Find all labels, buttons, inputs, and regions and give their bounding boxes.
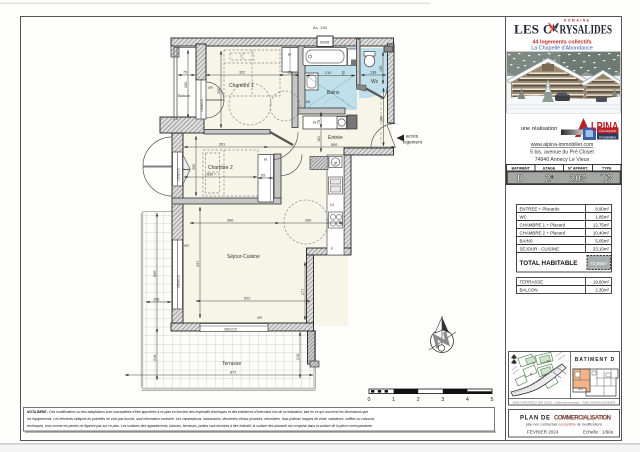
svg-text:140x215: 140x215 bbox=[200, 99, 204, 112]
svg-text:BAINS: BAINS bbox=[520, 239, 533, 244]
svg-text:Séjour-Cuisine: Séjour-Cuisine bbox=[227, 254, 260, 260]
svg-text:330: 330 bbox=[217, 88, 221, 94]
svg-text:CHAMBRE 2 + Placard: CHAMBRE 2 + Placard bbox=[520, 231, 566, 236]
svg-text:203: 203 bbox=[578, 387, 583, 391]
svg-text:1: 1 bbox=[392, 397, 395, 403]
svg-text:une réalisation: une réalisation bbox=[521, 126, 557, 132]
svg-text:ETAGE: ETAGE bbox=[543, 167, 556, 171]
svg-text:311: 311 bbox=[207, 173, 213, 177]
svg-text:75: 75 bbox=[317, 120, 321, 124]
svg-text:BABU D'ARCHITECTURE CA'DO: BABU D'ARCHITECTURE CA'DO - 5 allée des … bbox=[513, 401, 616, 405]
svg-text:351: 351 bbox=[219, 143, 225, 147]
svg-text:NOTA BENE : Des modification: NOTA BENE : Des modifications ou des ada… bbox=[27, 410, 368, 414]
svg-text:Balcon: Balcon bbox=[178, 93, 190, 98]
svg-text:T3: T3 bbox=[601, 174, 613, 185]
svg-text:5,05m²: 5,05m² bbox=[595, 239, 609, 244]
svg-text:135: 135 bbox=[379, 66, 383, 72]
svg-text:216: 216 bbox=[296, 354, 300, 360]
svg-text:TOTAL HABITABLE: TOTAL HABITABLE bbox=[520, 260, 578, 267]
svg-text:Echelle : 1/60e: Echelle : 1/60e bbox=[583, 430, 614, 435]
svg-text:Wc: Wc bbox=[371, 79, 379, 85]
svg-text:N° APPART.: N° APPART. bbox=[568, 167, 588, 171]
svg-text:210: 210 bbox=[325, 71, 331, 75]
svg-text:COMMERCIALISATION: COMMERCIALISATION bbox=[554, 416, 611, 422]
svg-text:260: 260 bbox=[305, 219, 311, 223]
svg-text:277: 277 bbox=[301, 289, 305, 295]
svg-text:1,85m²: 1,85m² bbox=[595, 215, 609, 220]
svg-text:65: 65 bbox=[261, 174, 265, 178]
svg-text:RYSALIDES: RYSALIDES bbox=[560, 23, 613, 37]
svg-text:LPINA: LPINA bbox=[591, 122, 619, 134]
svg-text:4: 4 bbox=[466, 397, 469, 403]
svg-text:280x215: 280x215 bbox=[177, 275, 181, 288]
svg-text:390: 390 bbox=[227, 219, 233, 223]
svg-text:BALCON: BALCON bbox=[520, 288, 538, 293]
svg-text:AL: 130: AL: 130 bbox=[313, 25, 328, 30]
svg-text:ENTREE + Placards: ENTREE + Placards bbox=[520, 207, 561, 212]
svg-text:33,10m²: 33,10m² bbox=[593, 247, 610, 252]
svg-text:200: 200 bbox=[184, 82, 188, 88]
svg-text:LV: LV bbox=[330, 203, 335, 207]
svg-text:2,30m²: 2,30m² bbox=[595, 288, 609, 293]
svg-text:322: 322 bbox=[239, 71, 245, 75]
svg-text:plan non contractuel susceptib: plan non contractuel susceptible de modi… bbox=[526, 423, 603, 427]
svg-text:95: 95 bbox=[342, 71, 346, 75]
svg-text:74940 Annecy Le Vieux: 74940 Annecy Le Vieux bbox=[535, 157, 590, 163]
svg-text:0: 0 bbox=[368, 397, 371, 403]
svg-text:BATIMENT: BATIMENT bbox=[512, 167, 531, 171]
svg-text:522: 522 bbox=[244, 297, 250, 301]
svg-text:PI: PI bbox=[288, 53, 291, 57]
svg-text:gf: gf bbox=[334, 161, 337, 165]
svg-text:203: 203 bbox=[570, 174, 587, 185]
svg-text:60x65: 60x65 bbox=[320, 41, 329, 45]
svg-text:D: D bbox=[517, 174, 524, 185]
svg-text:CHAMBRE 1 + Placard: CHAMBRE 1 + Placard bbox=[520, 223, 566, 228]
svg-text:PI: PI bbox=[264, 158, 267, 162]
svg-text:19,60m²: 19,60m² bbox=[593, 280, 610, 285]
svg-text:2: 2 bbox=[417, 397, 420, 403]
svg-text:5: 5 bbox=[491, 397, 494, 403]
svg-text:72,05m²: 72,05m² bbox=[590, 261, 608, 266]
svg-text:Entrée: Entrée bbox=[328, 135, 343, 141]
svg-text:3: 3 bbox=[441, 397, 444, 403]
svg-text:Bains: Bains bbox=[327, 90, 340, 96]
svg-text:les équipements. Les éléments: les équipements. Les éléments indiqués e… bbox=[27, 417, 375, 421]
svg-text:Chambre 2: Chambre 2 bbox=[208, 165, 233, 171]
svg-text:292: 292 bbox=[192, 164, 196, 170]
svg-text:8,90m²: 8,90m² bbox=[595, 207, 609, 212]
svg-text:260x215: 260x215 bbox=[224, 328, 237, 332]
svg-text:216: 216 bbox=[153, 355, 157, 361]
svg-text:TYPE: TYPE bbox=[602, 167, 612, 171]
svg-text:Immobilière: Immobilière bbox=[599, 135, 617, 139]
svg-text:75: 75 bbox=[183, 71, 187, 75]
svg-text:161: 161 bbox=[317, 136, 321, 142]
svg-text:500: 500 bbox=[331, 143, 337, 147]
svg-text:FEVRIER 2024: FEVRIER 2024 bbox=[527, 430, 559, 435]
svg-text:65: 65 bbox=[288, 71, 292, 75]
svg-text:www.alpina-immobilier.com: www.alpina-immobilier.com bbox=[531, 142, 594, 148]
svg-text:12,75m²: 12,75m² bbox=[593, 223, 610, 228]
svg-text:VR: VR bbox=[184, 244, 189, 248]
svg-text:WC: WC bbox=[520, 215, 527, 220]
svg-text:120x215: 120x215 bbox=[177, 168, 181, 181]
svg-text:106: 106 bbox=[153, 298, 159, 302]
svg-text:SEJOUR - CUISINE: SEJOUR - CUISINE bbox=[520, 247, 560, 252]
svg-text:138: 138 bbox=[370, 71, 376, 75]
svg-text:10,40m²: 10,40m² bbox=[593, 231, 610, 236]
svg-text:872: 872 bbox=[230, 371, 236, 375]
svg-text:VR: VR bbox=[257, 316, 262, 320]
svg-text:BATIMENT D: BATIMENT D bbox=[575, 357, 615, 363]
svg-text:500: 500 bbox=[153, 271, 157, 277]
svg-text:Terrasse: Terrasse bbox=[222, 361, 241, 367]
svg-text:La Chapelle d'Abondance: La Chapelle d'Abondance bbox=[531, 46, 593, 52]
svg-text:VR: VR bbox=[208, 86, 213, 90]
svg-text:PI: PI bbox=[313, 121, 316, 125]
svg-text:Chambre 1: Chambre 1 bbox=[229, 83, 254, 89]
svg-text:LES: LES bbox=[514, 23, 539, 37]
svg-text:437: 437 bbox=[196, 261, 200, 267]
svg-text:accès: accès bbox=[406, 134, 419, 139]
svg-text:techniques, tout comme les pen: techniques, tout comme les pentes ne fig… bbox=[27, 424, 373, 428]
svg-text:ML: ML bbox=[306, 100, 311, 104]
svg-text:266: 266 bbox=[380, 116, 384, 122]
svg-text:5 bis, avenue du Pré Closet: 5 bis, avenue du Pré Closet bbox=[530, 150, 594, 156]
svg-text:logement: logement bbox=[403, 140, 423, 145]
svg-text:TERRASSE: TERRASSE bbox=[520, 280, 544, 285]
svg-text:PLAN DE: PLAN DE bbox=[520, 416, 550, 422]
